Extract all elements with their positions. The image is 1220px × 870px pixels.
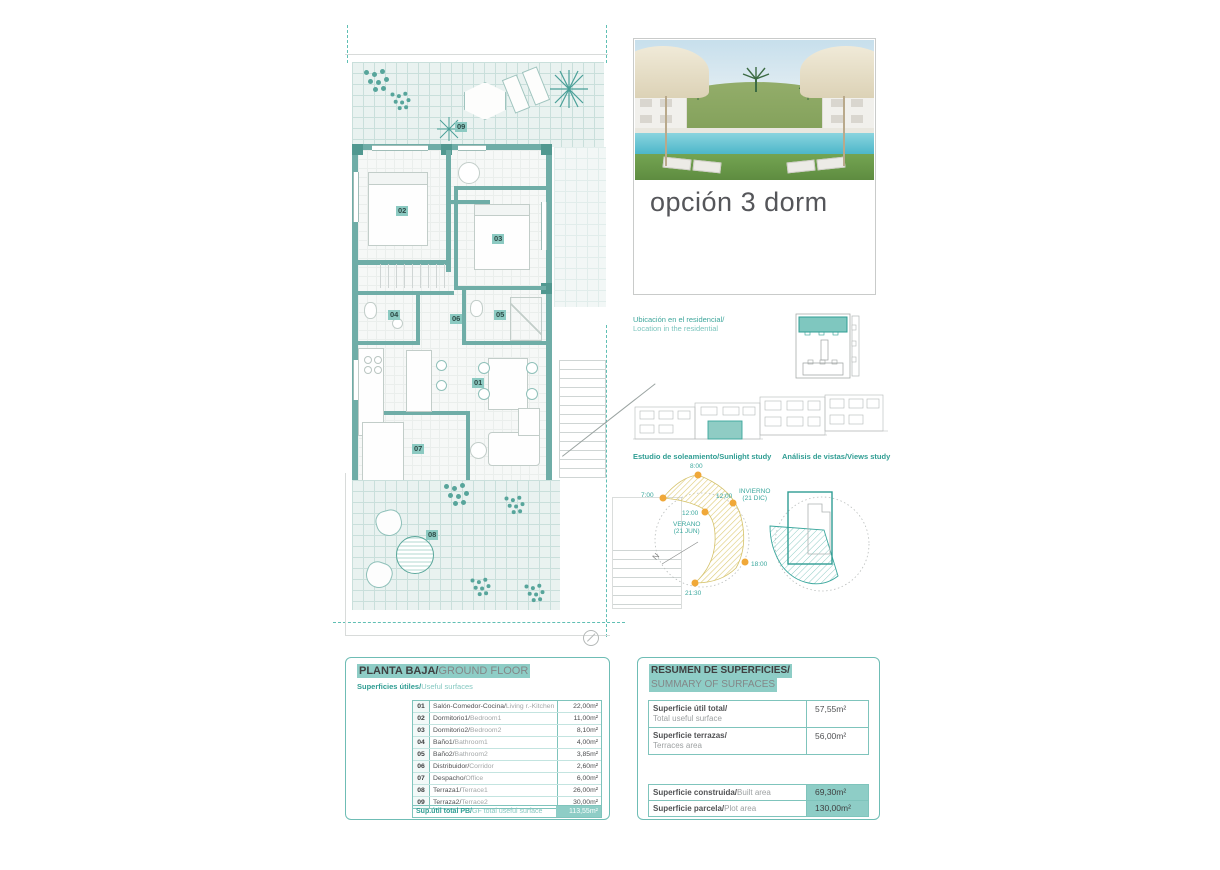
sun-time-2130: 21:30 bbox=[685, 590, 701, 597]
location-note-es: Ubicación en el residencial/ bbox=[633, 315, 724, 324]
plan-boundary-dash-right2 bbox=[606, 325, 607, 637]
brochure-page: 09 bbox=[0, 0, 1220, 870]
plant-icon bbox=[525, 585, 529, 589]
room-label-07: 07 bbox=[412, 444, 424, 454]
option-card: opción 3 dorm bbox=[633, 38, 876, 295]
sun-time-1200-summer: 12:00 bbox=[682, 510, 698, 517]
plant-icon bbox=[391, 93, 395, 97]
wall bbox=[462, 341, 546, 345]
useful-surfaces-subtitle: Superficies útiles/Useful surfaces bbox=[357, 682, 473, 691]
apartment-building bbox=[822, 92, 874, 132]
swimming-pool bbox=[635, 133, 874, 154]
chaise-icon bbox=[518, 408, 540, 436]
plan-boundary-dash-right bbox=[606, 25, 607, 63]
entry-steps bbox=[380, 264, 446, 288]
dwelling-unit: 02 03 04 05 06 01 07 bbox=[352, 144, 552, 530]
total-useful-surface-row: Sup.útil total PB/GF total useful surfac… bbox=[412, 805, 602, 818]
plant-icon bbox=[471, 579, 475, 583]
views-study-title: Análisis de vistas/Views study bbox=[782, 452, 890, 461]
table-row: Superficie construida/Built area 69,30m² bbox=[649, 785, 868, 800]
floor-plan: 09 bbox=[345, 25, 610, 650]
window bbox=[458, 145, 486, 151]
table-row: 04Baño1/Bathroom14,00m² bbox=[413, 736, 601, 748]
site-plan-diagram bbox=[795, 313, 861, 381]
table-row: 03Dormitorio2/Bedroom28,10m² bbox=[413, 724, 601, 736]
ground-floor-table-card: PLANTA BAJA/GROUND FLOOR Superficies úti… bbox=[345, 657, 610, 820]
plan-outline-left bbox=[345, 473, 346, 635]
plant-icon bbox=[364, 70, 369, 75]
shower-icon bbox=[510, 297, 542, 341]
terrace-chair-icon bbox=[373, 507, 405, 539]
umbrella-canopy-icon bbox=[800, 46, 874, 98]
winter-label: INVIERNO (21 DIC) bbox=[739, 488, 770, 502]
window bbox=[353, 172, 359, 222]
wall bbox=[454, 186, 546, 190]
wall bbox=[446, 150, 451, 272]
table-row: Superficie terrazas/Terraces area 56,00m… bbox=[649, 727, 868, 754]
summer-label: VERANO (21 JUN) bbox=[673, 521, 700, 535]
plan-boundary-dash-left bbox=[347, 25, 348, 63]
summary-title-es: RESUMEN DE SUPERFICIES/ bbox=[649, 664, 792, 678]
survey-marker-icon bbox=[583, 630, 599, 646]
sun-time-0800: 8:00 bbox=[690, 463, 703, 470]
table-row: 01Salón-Comedor-Cocina/Living r.-Kitchen… bbox=[413, 701, 601, 712]
bed-pillow bbox=[368, 172, 428, 185]
built-plot-table: Superficie construida/Built area 69,30m²… bbox=[648, 784, 869, 817]
apartment-building bbox=[635, 92, 687, 132]
location-note: Ubicación en el residencial/ Location in… bbox=[633, 315, 724, 333]
sun-time-0700: 7:00 bbox=[641, 492, 654, 499]
chair-icon bbox=[526, 362, 538, 374]
room-label-01: 01 bbox=[472, 378, 484, 388]
terrace-09: 09 bbox=[352, 62, 604, 147]
communal-stairs bbox=[559, 360, 606, 478]
wall bbox=[462, 290, 466, 345]
plant-icon bbox=[444, 484, 449, 489]
parasol-icon bbox=[464, 82, 506, 120]
wall bbox=[358, 291, 454, 295]
chair-icon bbox=[478, 362, 490, 374]
room-label-05: 05 bbox=[494, 310, 506, 320]
room-label-03: 03 bbox=[492, 234, 504, 244]
window bbox=[541, 202, 547, 250]
table-row: Superficie parcela/Plot area 130,00m² bbox=[649, 800, 868, 816]
views-study-diagram bbox=[768, 464, 888, 612]
table-row: 05Baño2/Bathroom23,85m² bbox=[413, 748, 601, 760]
toilet-icon bbox=[364, 302, 377, 319]
plan-boundary-dash-bottom bbox=[333, 622, 625, 623]
wall bbox=[454, 186, 458, 290]
wall bbox=[416, 291, 420, 345]
table-row: 06Distribuidor/Corridor2,60m² bbox=[413, 760, 601, 772]
plan-guide-line bbox=[345, 54, 608, 55]
sun-time-1200-winter: 12:00 bbox=[716, 493, 732, 500]
terrace-08: 08 bbox=[352, 480, 560, 610]
wall bbox=[358, 341, 418, 345]
summary-title-en: SUMMARY OF SURFACES bbox=[649, 678, 777, 692]
sofa-icon bbox=[488, 432, 540, 466]
sunlight-study-diagram: 8:00 7:00 12:00 12:00 18:00 21:30 VERANO… bbox=[640, 462, 775, 612]
stool-icon bbox=[436, 380, 447, 391]
ground-floor-title: PLANTA BAJA/GROUND FLOOR bbox=[357, 664, 530, 678]
palm-tree-icon bbox=[739, 66, 773, 92]
plan-outline-bottom bbox=[345, 635, 610, 636]
table-row: Superficie útil total/Total useful surfa… bbox=[649, 701, 868, 727]
dining-table-icon bbox=[488, 358, 528, 410]
chair-icon bbox=[526, 388, 538, 400]
building-elevation-diagram bbox=[633, 393, 888, 445]
total-useful-surface-value: 113,55m² bbox=[556, 806, 601, 817]
washing-machine-icon bbox=[458, 162, 480, 184]
room-label-02: 02 bbox=[396, 206, 408, 216]
stool-icon bbox=[436, 360, 447, 371]
chair-icon bbox=[478, 388, 490, 400]
side-terrace-grid bbox=[554, 147, 606, 307]
toilet-icon bbox=[470, 300, 483, 317]
stove-icon bbox=[364, 356, 372, 364]
residential-render-photo bbox=[635, 40, 874, 180]
wall bbox=[454, 286, 546, 290]
location-note-en: Location in the residential bbox=[633, 324, 724, 333]
side-table-icon bbox=[470, 442, 487, 459]
sun-time-1800: 18:00 bbox=[751, 561, 767, 568]
palm-tree-icon bbox=[548, 68, 590, 110]
room-label-04: 04 bbox=[388, 310, 400, 320]
window bbox=[372, 145, 428, 151]
kitchen-island-icon bbox=[406, 350, 432, 412]
bed-pillow bbox=[474, 204, 530, 216]
room-label-06: 06 bbox=[450, 314, 462, 324]
wall-column bbox=[541, 144, 552, 155]
plant-icon bbox=[505, 497, 509, 501]
summary-surfaces-table: Superficie útil total/Total useful surfa… bbox=[648, 700, 869, 755]
table-row: 02Dormitorio1/Bedroom111,00m² bbox=[413, 712, 601, 724]
wall-column bbox=[352, 144, 363, 155]
room-label-08: 08 bbox=[426, 530, 438, 540]
summary-table-card: RESUMEN DE SUPERFICIES/ SUMMARY OF SURFA… bbox=[637, 657, 880, 820]
sunlight-study-title: Estudio de soleamiento/Sunlight study bbox=[633, 452, 771, 461]
table-row: 07Despacho/Office6,00m² bbox=[413, 772, 601, 784]
terrace-table-icon bbox=[396, 536, 434, 574]
option-caption: opción 3 dorm bbox=[650, 187, 828, 218]
room-surfaces-table: 01Salón-Comedor-Cocina/Living r.-Kitchen… bbox=[412, 700, 602, 809]
table-row: 08Terraza1/Terrace126,00m² bbox=[413, 784, 601, 796]
room-label-09: 09 bbox=[455, 122, 467, 132]
terrace-chair-icon bbox=[362, 558, 395, 591]
